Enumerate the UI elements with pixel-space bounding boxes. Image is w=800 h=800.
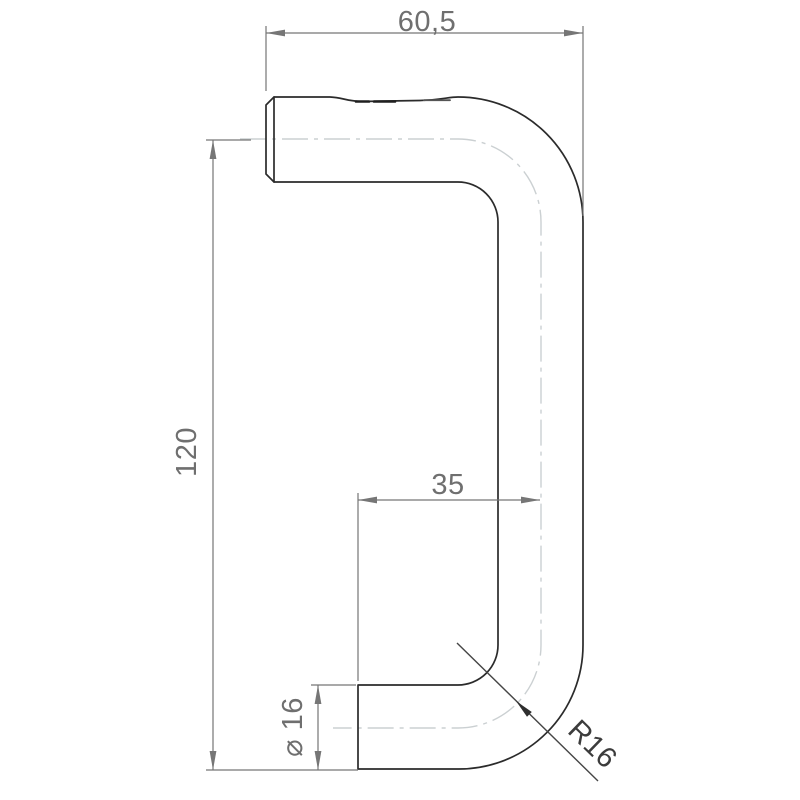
dimension-top-width: 60,5 <box>266 6 583 216</box>
technical-drawing-page: 60,5 120 35 ⌀ 16 <box>0 0 800 800</box>
handle-technical-drawing: 60,5 120 35 ⌀ 16 <box>0 0 800 800</box>
arrow-down-icon <box>210 751 217 770</box>
arrow-up-icon <box>315 685 322 704</box>
arrow-left-icon <box>266 30 285 37</box>
arrow-left-icon <box>358 497 377 504</box>
arrow-right-icon <box>564 30 583 37</box>
centerline-path <box>240 139 541 728</box>
dim-radius-label: R16 <box>561 714 623 775</box>
handle-outline <box>266 97 583 769</box>
arrow-down-icon <box>315 751 322 770</box>
arrow-up-icon <box>210 140 217 159</box>
dimension-overall-height: 120 <box>171 140 358 770</box>
dimension-bend-radius: R16 <box>457 643 623 781</box>
dim-offset-label: 35 <box>431 469 464 501</box>
dim-height-label: 120 <box>171 427 203 477</box>
arrow-right-icon <box>521 497 540 504</box>
dim-top-width-label: 60,5 <box>398 6 456 38</box>
dimension-center-offset: 35 <box>358 469 540 681</box>
handle-profile-path <box>266 97 583 769</box>
tube-centerline <box>240 139 541 728</box>
dim-diameter-label: ⌀ 16 <box>277 697 309 757</box>
